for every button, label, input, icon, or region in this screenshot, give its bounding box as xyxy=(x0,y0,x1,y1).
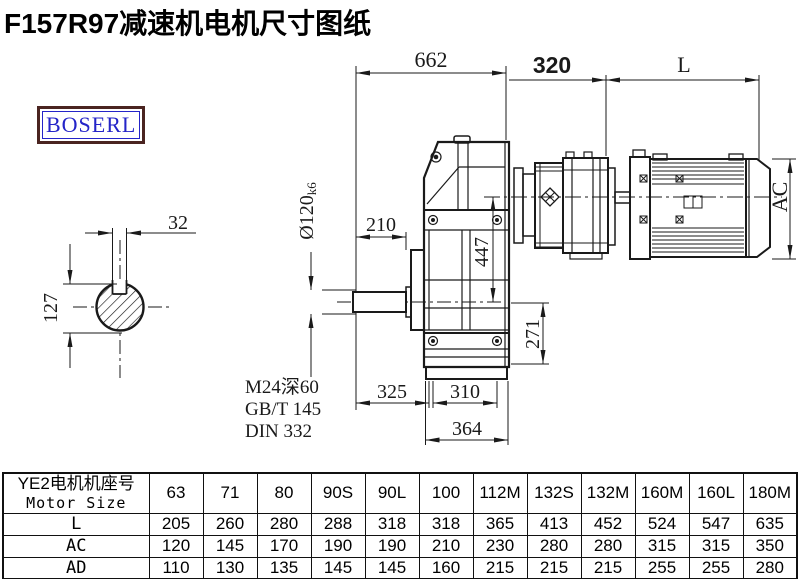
header-motor-size: YE2电机机座号 Motor Size xyxy=(3,473,149,513)
table-cell: 260 xyxy=(203,513,257,535)
dim-AC-label: AC xyxy=(767,182,792,213)
table-cell: 145 xyxy=(311,557,365,579)
dim-127-label: 127 xyxy=(40,293,62,323)
dim-motor-length: L xyxy=(606,52,759,160)
table-cell: 120 xyxy=(149,535,203,557)
table-cell: 280 xyxy=(527,535,581,557)
dim-input-length: 320 xyxy=(509,52,606,156)
table-cell: 205 xyxy=(149,513,203,535)
shaft-section-view xyxy=(73,228,170,378)
column-header: 112M xyxy=(473,473,527,513)
table-cell: 350 xyxy=(743,535,797,557)
column-header: 71 xyxy=(203,473,257,513)
dim-271: 271 xyxy=(511,303,549,364)
dim-shaft-tol-label: k6 xyxy=(304,182,319,196)
technical-drawing: 32 127 Ø120k6 M24深60 GB/T 145 DIN 332 xyxy=(0,0,800,472)
dim-210: 210 xyxy=(356,214,406,250)
table-cell: 215 xyxy=(473,557,527,579)
table-cell: 170 xyxy=(257,535,311,557)
dim-310-label: 310 xyxy=(450,381,480,403)
table-row: AD 110 130 135 145 145 160 215 215 215 2… xyxy=(3,557,797,579)
table-cell: 145 xyxy=(365,557,419,579)
table-cell: 318 xyxy=(419,513,473,535)
header-cn: YE2电机机座号 xyxy=(4,474,149,494)
table-cell: 288 xyxy=(311,513,365,535)
table-row: L 205 260 280 288 318 318 365 413 452 52… xyxy=(3,513,797,535)
tap-hole-notes: M24深60 GB/T 145 DIN 332 xyxy=(245,376,321,442)
table-cell: 230 xyxy=(473,535,527,557)
table-cell: 130 xyxy=(203,557,257,579)
table-cell: 318 xyxy=(365,513,419,535)
table-cell: 365 xyxy=(473,513,527,535)
column-header: 160L xyxy=(689,473,743,513)
table-cell: 315 xyxy=(689,535,743,557)
dim-shaft-dia-label: Ø120 xyxy=(296,195,318,239)
dim-447-label: 447 xyxy=(471,237,493,267)
dim-shaft-diameter: Ø120k6 xyxy=(296,182,356,377)
column-header: 63 xyxy=(149,473,203,513)
svg-text:Ø120k6: Ø120k6 xyxy=(296,182,319,240)
note-gb: GB/T 145 xyxy=(245,399,321,420)
table-cell: 210 xyxy=(419,535,473,557)
dim-210-label: 210 xyxy=(366,214,396,236)
drawing-sheet: F157R97减速机电机尺寸图纸 BOSERL xyxy=(0,0,800,579)
table-cell: 190 xyxy=(311,535,365,557)
table-cell: 635 xyxy=(743,513,797,535)
table-cell: 160 xyxy=(419,557,473,579)
dim-320-label: 320 xyxy=(533,52,571,78)
dim-447: 447 xyxy=(471,197,493,302)
gearbox-body xyxy=(337,66,782,410)
table-row: AC 120 145 170 190 190 210 230 280 280 3… xyxy=(3,535,797,557)
dim-325: 325 xyxy=(356,381,429,408)
motor-size-table: YE2电机机座号 Motor Size 63 71 80 90S 90L 100… xyxy=(2,472,798,579)
table-cell: 190 xyxy=(365,535,419,557)
column-header: 180M xyxy=(743,473,797,513)
table-cell: 215 xyxy=(581,557,635,579)
column-header: 100 xyxy=(419,473,473,513)
header-en: Motor Size xyxy=(4,494,149,512)
column-header: 90L xyxy=(365,473,419,513)
table-header-row: YE2电机机座号 Motor Size 63 71 80 90S 90L 100… xyxy=(3,473,797,513)
table-cell: 280 xyxy=(257,513,311,535)
table-cell: 524 xyxy=(635,513,689,535)
table-cell: 255 xyxy=(689,557,743,579)
column-header: 90S xyxy=(311,473,365,513)
row-label-AC: AC xyxy=(3,535,149,557)
column-header: 132M xyxy=(581,473,635,513)
column-header: 160M xyxy=(635,473,689,513)
row-label-L: L xyxy=(3,513,149,535)
dim-32-label: 32 xyxy=(168,212,188,234)
table-cell: 452 xyxy=(581,513,635,535)
dim-325-label: 325 xyxy=(377,381,407,403)
dim-271-label: 271 xyxy=(522,319,544,349)
table-cell: 280 xyxy=(743,557,797,579)
table-cell: 110 xyxy=(149,557,203,579)
table-cell: 135 xyxy=(257,557,311,579)
table-cell: 145 xyxy=(203,535,257,557)
dim-310: 310 xyxy=(433,381,497,408)
table-cell: 413 xyxy=(527,513,581,535)
dim-662-label: 662 xyxy=(415,47,448,72)
dim-364-label: 364 xyxy=(452,418,482,440)
table-cell: 547 xyxy=(689,513,743,535)
dim-keyway-width: 32 xyxy=(85,212,196,234)
table-cell: 255 xyxy=(635,557,689,579)
input-adapter xyxy=(514,152,630,259)
row-label-AD: AD xyxy=(3,557,149,579)
dim-overall-length: 662 xyxy=(356,47,506,140)
dim-motor-height: AC xyxy=(767,159,796,259)
table-cell: 315 xyxy=(635,535,689,557)
column-header: 132S xyxy=(527,473,581,513)
motor-body xyxy=(630,150,770,259)
table-cell: 215 xyxy=(527,557,581,579)
note-tap: M24深60 xyxy=(245,376,319,398)
dim-L-label: L xyxy=(677,52,690,77)
note-din: DIN 332 xyxy=(245,421,312,442)
table-cell: 280 xyxy=(581,535,635,557)
column-header: 80 xyxy=(257,473,311,513)
